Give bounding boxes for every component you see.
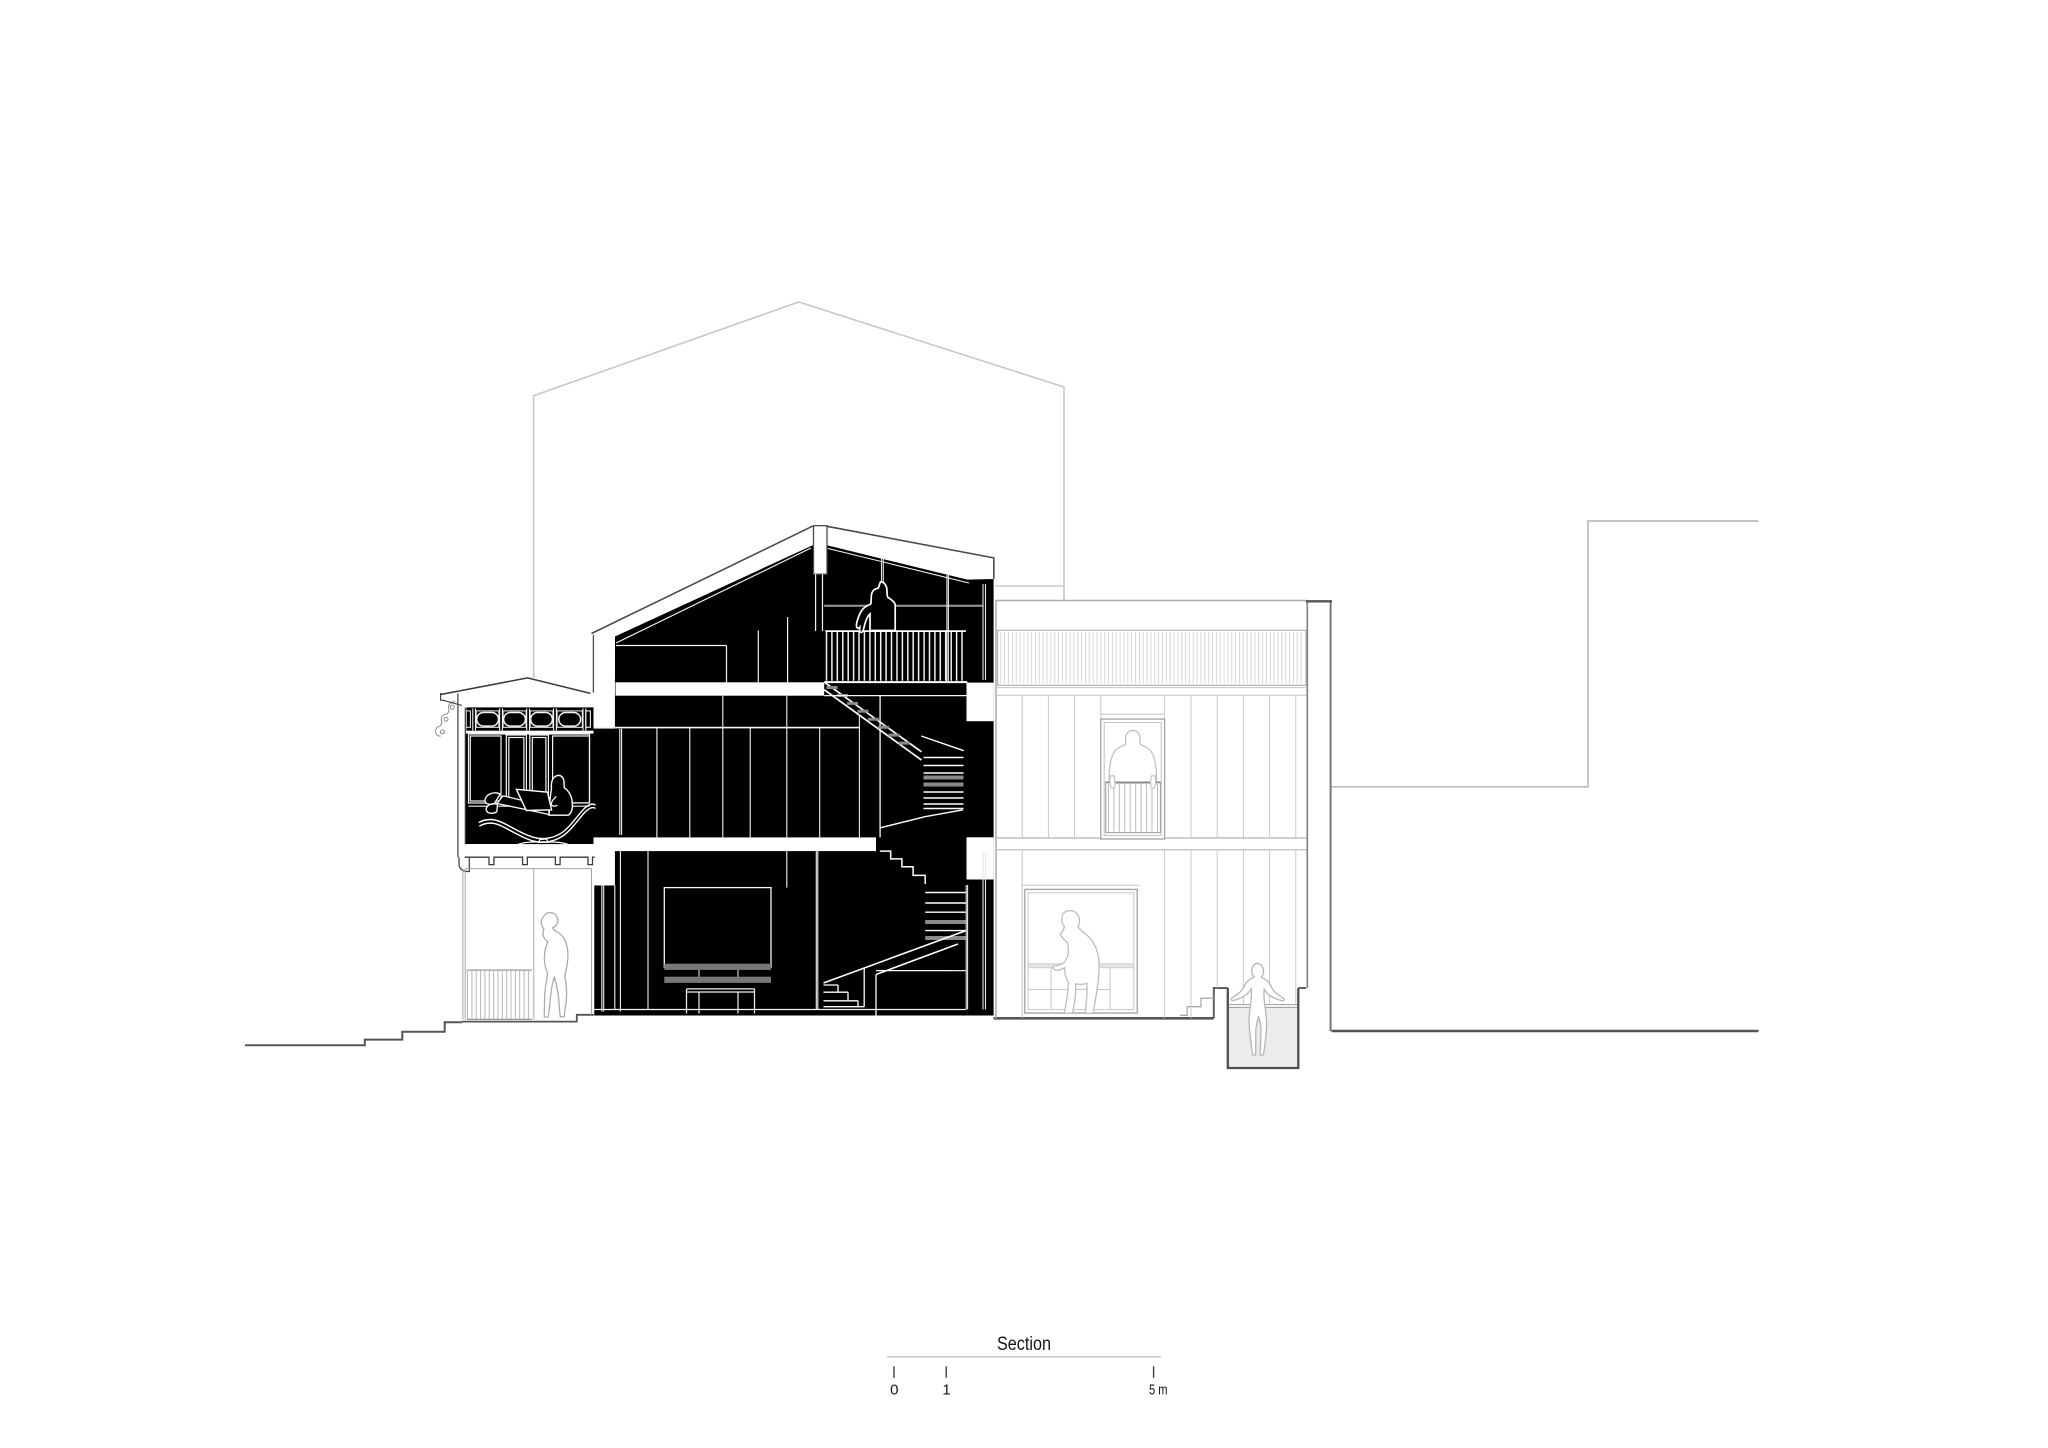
svg-text:0: 0 — [890, 1381, 898, 1398]
svg-text:Section: Section — [997, 1334, 1051, 1355]
svg-text:5 m: 5 m — [1149, 1381, 1168, 1398]
svg-text:1: 1 — [942, 1381, 950, 1398]
